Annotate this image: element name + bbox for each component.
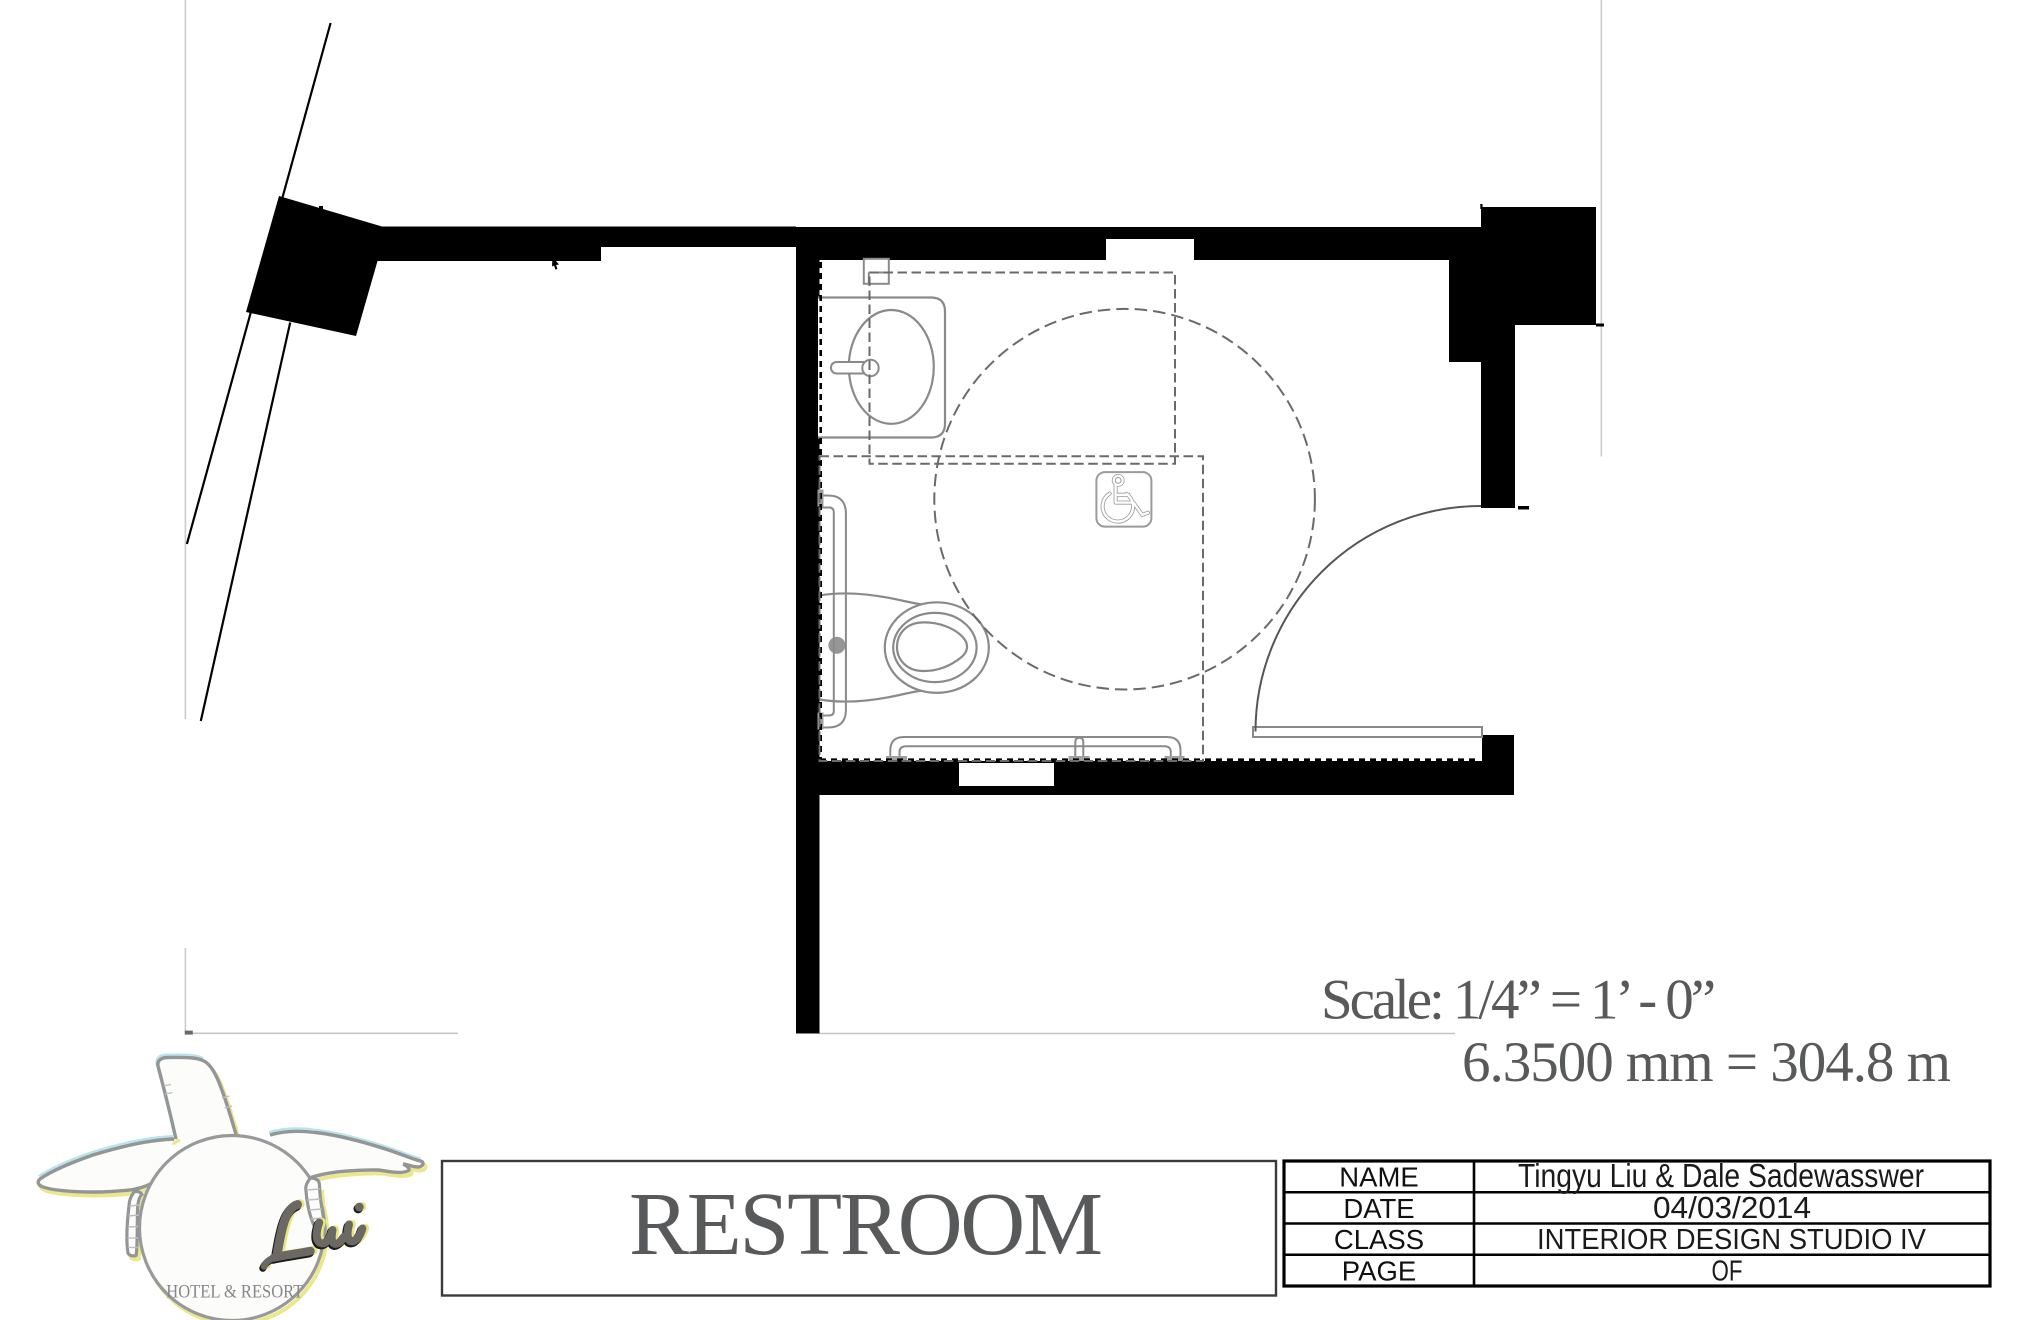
svg-text:CLASS: CLASS: [1334, 1224, 1424, 1255]
svg-text:RESTROOM: RESTROOM: [629, 1175, 1103, 1274]
svg-text:PAGE: PAGE: [1342, 1255, 1416, 1286]
svg-text:DATE: DATE: [1343, 1193, 1414, 1224]
svg-text:NAME: NAME: [1339, 1162, 1418, 1193]
svg-text:HOTEL & RESORT: HOTEL & RESORT: [166, 1282, 303, 1303]
svg-text:Tingyu Liu & Dale Sadewasswer: Tingyu Liu & Dale Sadewasswer: [1518, 1157, 1924, 1194]
svg-text:OF: OF: [1712, 1255, 1743, 1287]
svg-text:6.3500 mm = 304.8 m: 6.3500 mm = 304.8 m: [1462, 1031, 1951, 1094]
svg-text:Scale: 1/4” = 1’ - 0”: Scale: 1/4” = 1’ - 0”: [1321, 969, 1716, 1032]
svg-text:04/03/2014: 04/03/2014: [1653, 1190, 1811, 1225]
svg-text:INTERIOR DESIGN STUDIO IV: INTERIOR DESIGN STUDIO IV: [1537, 1224, 1927, 1256]
